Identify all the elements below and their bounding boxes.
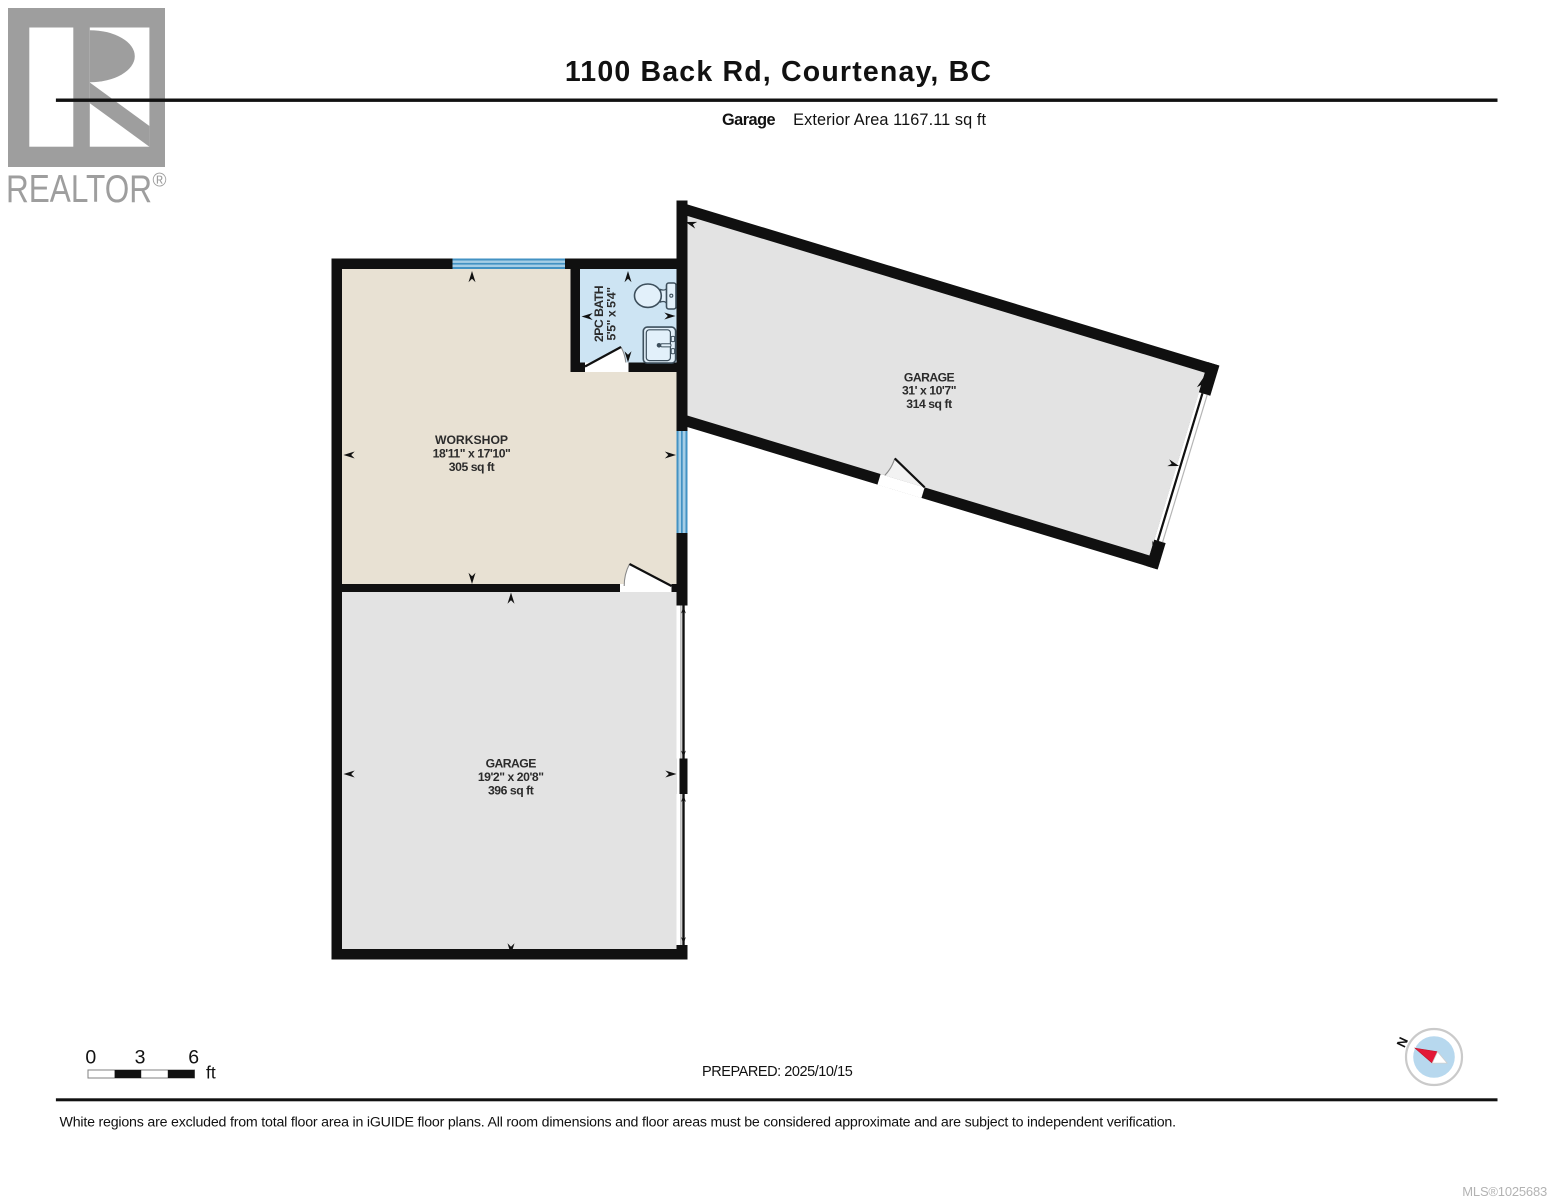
svg-text:GARAGE: GARAGE (486, 756, 537, 770)
svg-text:396 sq ft: 396 sq ft (488, 783, 534, 797)
svg-text:WORKSHOP: WORKSHOP (435, 433, 508, 447)
svg-text:3: 3 (135, 1047, 146, 1069)
svg-text:5'5" x 5'4": 5'5" x 5'4" (604, 287, 618, 340)
svg-text:MLS®1025683: MLS®1025683 (1462, 1184, 1547, 1199)
svg-text:6: 6 (188, 1047, 199, 1069)
svg-text:1100 Back Rd, Courtenay, BC: 1100 Back Rd, Courtenay, BC (565, 56, 992, 88)
svg-text:31' x 10'7": 31' x 10'7" (902, 383, 956, 397)
svg-text:0: 0 (85, 1047, 96, 1069)
svg-text:19'2" x 20'8": 19'2" x 20'8" (478, 770, 544, 784)
svg-text:305 sq ft: 305 sq ft (449, 460, 495, 474)
svg-text:314 sq ft: 314 sq ft (906, 397, 952, 411)
svg-text:18'11" x 17'10": 18'11" x 17'10" (433, 447, 511, 461)
svg-text:®: ® (153, 171, 167, 192)
svg-text:White regions are excluded fro: White regions are excluded from total fl… (60, 1115, 1176, 1131)
svg-text:ft: ft (206, 1063, 216, 1083)
svg-text:REALTOR: REALTOR (6, 168, 152, 211)
svg-text:PREPARED: 2025/10/15: PREPARED: 2025/10/15 (702, 1064, 853, 1080)
svg-text:GARAGE: GARAGE (904, 370, 955, 384)
svg-text:GarageExterior Area 1167.11 sq: GarageExterior Area 1167.11 sq ft (722, 111, 987, 129)
